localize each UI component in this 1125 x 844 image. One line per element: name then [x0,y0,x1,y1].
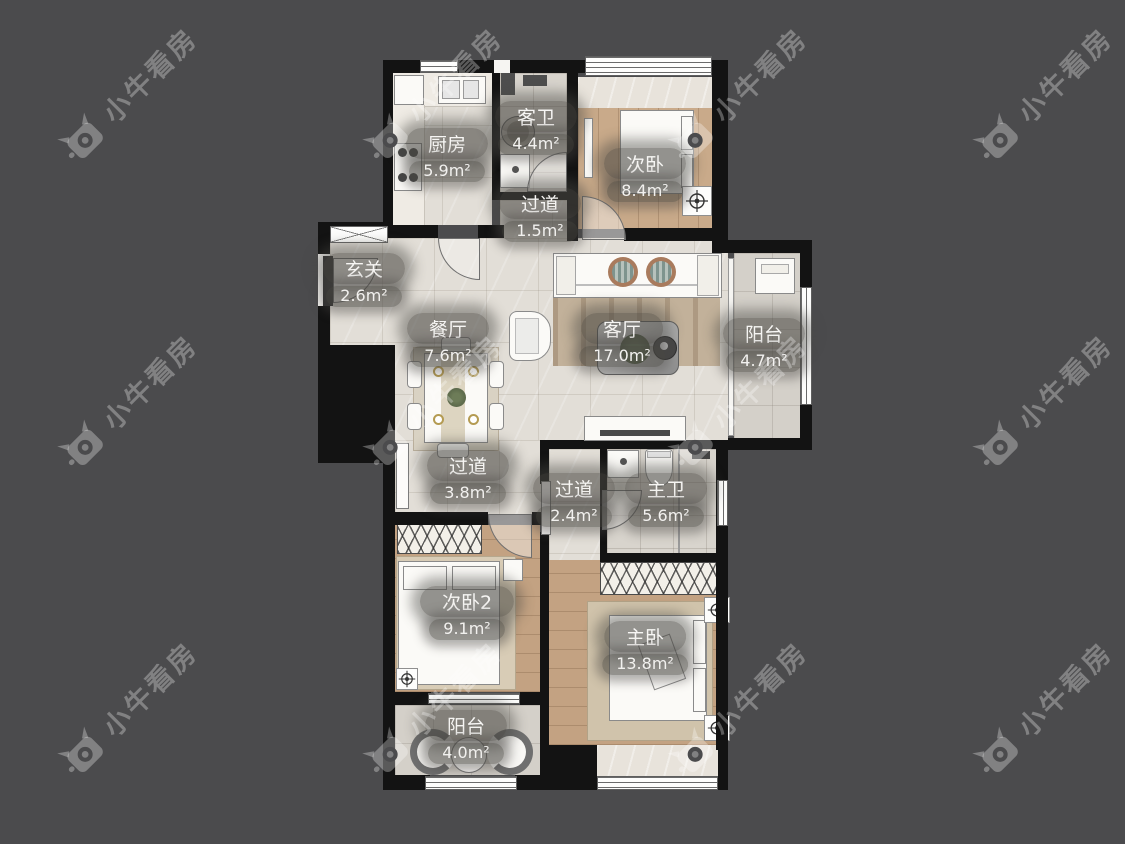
watermark: 小牛看房 [53,324,205,476]
niu-camera-icon [663,108,724,169]
watermark-text: 小牛看房 [92,17,204,129]
niu-camera-icon [968,722,1029,783]
watermark: 小牛看房 [968,17,1120,169]
watermark: 小牛看房 [53,17,205,169]
watermark: 小牛看房 [663,631,815,783]
niu-camera-icon [663,722,724,783]
niu-camera-icon [358,415,419,476]
niu-camera-icon [53,415,114,476]
niu-camera-icon [53,108,114,169]
watermark-text: 小牛看房 [92,324,204,436]
watermark-text: 小牛看房 [702,631,814,743]
watermark: 小牛看房 [358,324,510,476]
watermark-text: 小牛看房 [397,17,509,129]
niu-camera-icon [968,108,1029,169]
watermark-text: 小牛看房 [702,324,814,436]
niu-camera-icon [53,722,114,783]
floorplan-image: 厨房 5.9m² 客卫 4.4m² 过道 1.5m² 次卧 8.4m² 玄关 2… [0,0,1125,844]
niu-camera-icon [358,108,419,169]
watermark-text: 小牛看房 [397,324,509,436]
watermark: 小牛看房 [663,324,815,476]
watermark-text: 小牛看房 [397,631,509,743]
niu-camera-icon [663,415,724,476]
watermark: 小牛看房 [968,324,1120,476]
niu-camera-icon [968,415,1029,476]
watermark: 小牛看房 [358,17,510,169]
watermark-text: 小牛看房 [1007,17,1119,129]
watermark: 小牛看房 [53,631,205,783]
watermark: 小牛看房 [663,17,815,169]
watermark-text: 小牛看房 [702,17,814,129]
watermark-layer: 小牛看房小牛看房小牛看房小牛看房小牛看房小牛看房小牛看房小牛看房小牛看房小牛看房… [0,0,1125,844]
watermark: 小牛看房 [968,631,1120,783]
watermark-text: 小牛看房 [1007,324,1119,436]
niu-camera-icon [358,722,419,783]
watermark: 小牛看房 [358,631,510,783]
watermark-text: 小牛看房 [92,631,204,743]
watermark-text: 小牛看房 [1007,631,1119,743]
